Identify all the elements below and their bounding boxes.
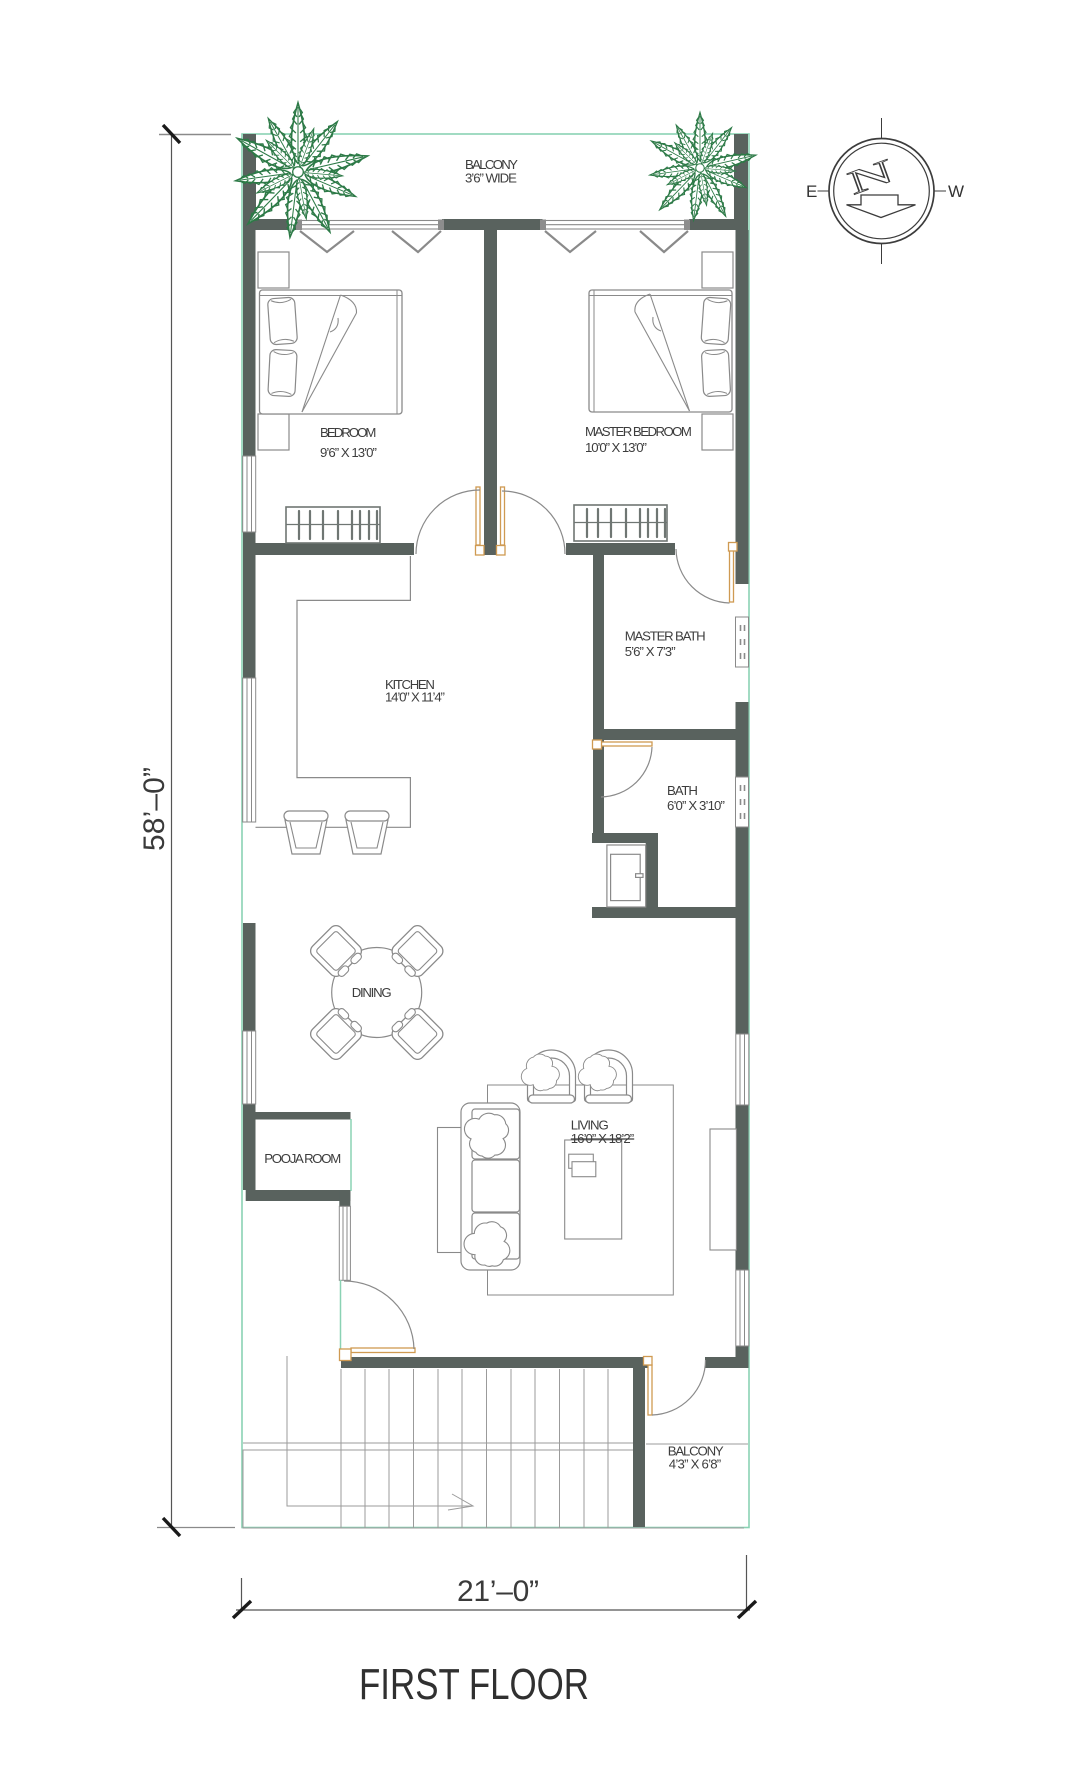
svg-text:W: W [948,182,964,201]
svg-text:4’3” X 6’8”: 4’3” X 6’8” [669,1457,722,1472]
svg-text:DINING: DINING [352,985,392,1000]
svg-text:58’–0”: 58’–0” [138,767,171,851]
svg-text:BEDROOM: BEDROOM [320,425,377,440]
svg-text:MASTER BATH: MASTER BATH [625,629,706,644]
svg-text:21’–0”: 21’–0” [457,1575,539,1608]
svg-text:FIRST FLOOR: FIRST FLOOR [359,1660,589,1709]
svg-text:3’6” WIDE: 3’6” WIDE [465,171,517,186]
svg-text:5’6” X 7’3”: 5’6” X 7’3” [625,644,676,659]
svg-text:9’6” X 13’0”: 9’6” X 13’0” [320,445,377,460]
svg-text:10’0” X 13’0”: 10’0” X 13’0” [585,440,647,455]
svg-text:14’0” X 11’4”: 14’0” X 11’4” [385,690,445,705]
svg-text:MASTER BEDROOM: MASTER BEDROOM [585,424,692,439]
svg-text:6’0” X 3’10”: 6’0” X 3’10” [667,798,725,813]
svg-text:E: E [806,182,817,201]
svg-text:POOJA ROOM: POOJA ROOM [264,1151,341,1166]
svg-text:BATH: BATH [667,783,698,798]
